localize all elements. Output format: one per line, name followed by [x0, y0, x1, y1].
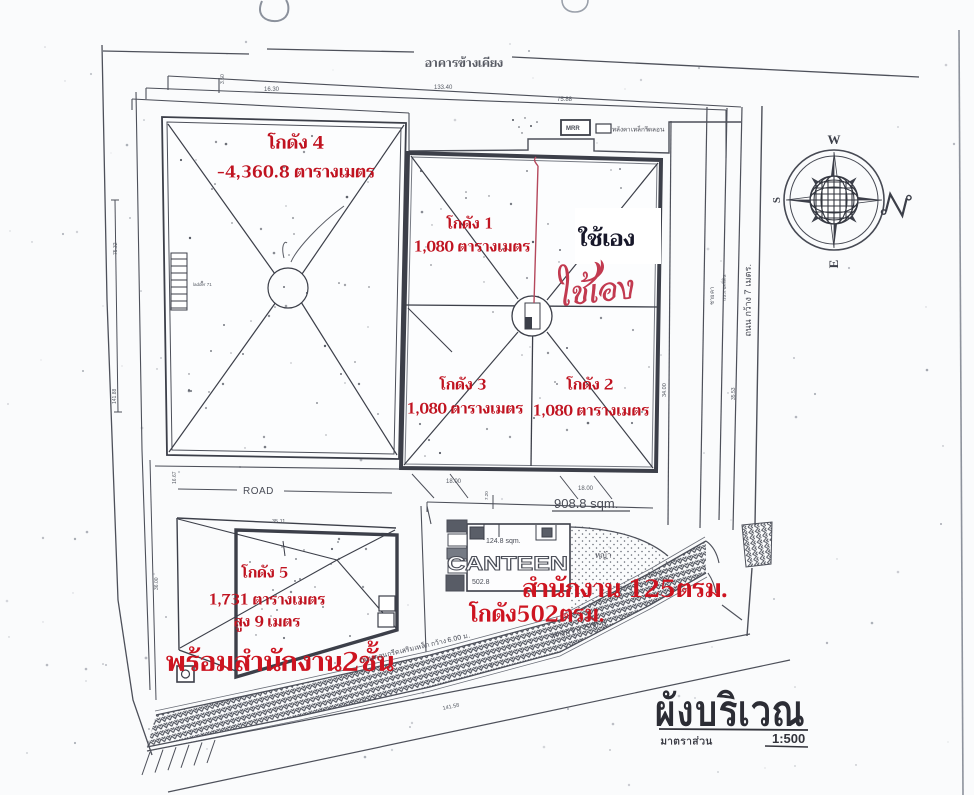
svg-text:MRR: MRR: [566, 126, 580, 132]
svg-text:E: E: [826, 260, 841, 269]
svg-text:75.88: 75.88: [557, 97, 573, 103]
svg-text:36.00: 36.00: [154, 577, 160, 590]
svg-text:75.32: 75.32: [113, 242, 119, 255]
svg-text:1:500: 1:500: [772, 731, 805, 746]
svg-text:34.00: 34.00: [662, 383, 668, 397]
svg-text:908.8 sqm.: 908.8 sqm.: [554, 496, 618, 511]
svg-text:W: W: [828, 132, 841, 147]
svg-text:ladder 71: ladder 71: [193, 282, 212, 287]
svg-text:133.40: 133.40: [434, 85, 453, 91]
svg-text:16.30: 16.30: [264, 87, 280, 93]
svg-text:ROAD: ROAD: [243, 486, 274, 497]
svg-text:35.11: 35.11: [272, 519, 285, 525]
svg-text:3.50: 3.50: [220, 74, 226, 84]
svg-text:141.88: 141.88: [112, 388, 118, 404]
svg-text:16.67: 16.67: [172, 471, 178, 484]
svg-text:18.00: 18.00: [446, 479, 462, 485]
svg-text:7.20: 7.20: [484, 491, 489, 500]
svg-text:18.00: 18.00: [578, 486, 594, 492]
svg-text:CANTEEN: CANTEEN: [447, 554, 568, 575]
svg-text:502.8: 502.8: [472, 579, 490, 586]
svg-text:35.53: 35.53: [731, 387, 737, 400]
svg-text:S: S: [771, 197, 783, 203]
svg-text:124.8 sqm.: 124.8 sqm.: [486, 538, 521, 545]
